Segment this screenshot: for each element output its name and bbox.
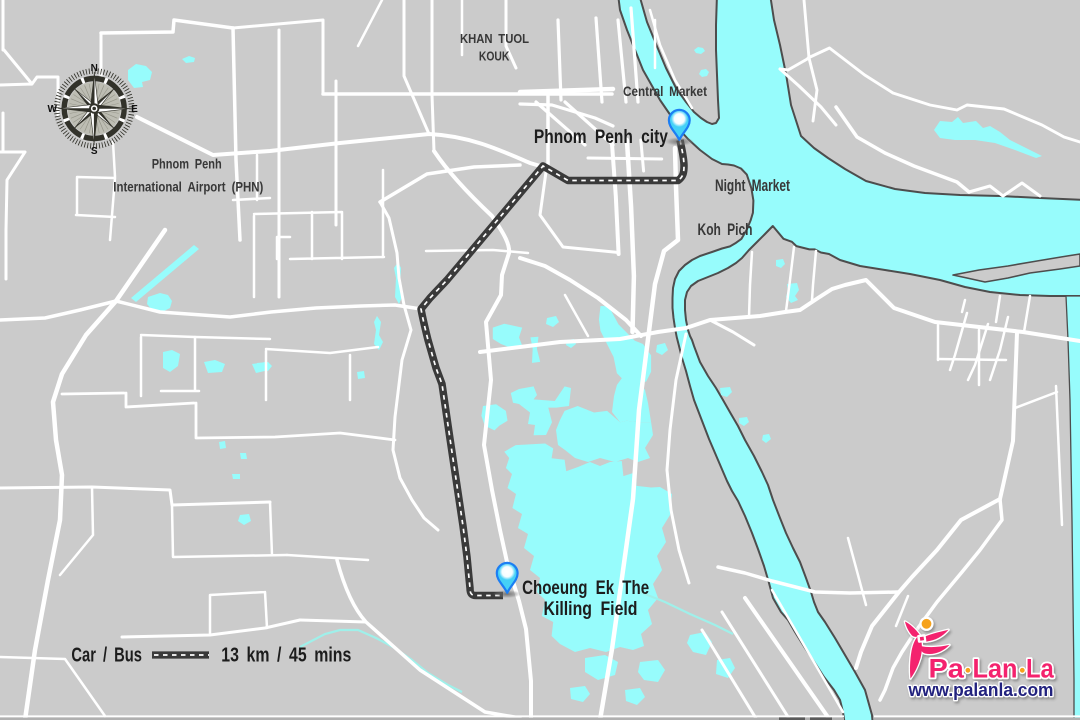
svg-text:W: W (47, 104, 57, 115)
svg-text:Night Market: Night Market (715, 176, 790, 195)
svg-text:Car / Bus: Car / Bus (71, 645, 141, 667)
svg-text:Koh Pich: Koh Pich (698, 220, 753, 239)
svg-text:Killing Field: Killing Field (544, 599, 638, 620)
svg-text:International Airport (PHN): International Airport (PHN) (113, 179, 263, 195)
svg-text:N: N (91, 63, 98, 74)
svg-text:KOUK: KOUK (479, 49, 510, 64)
svg-text:www.palanla.com: www.palanla.com (908, 679, 1054, 700)
svg-text:13 km / 45 mins: 13 km / 45 mins (221, 645, 351, 667)
svg-text:KHAN TUOL: KHAN TUOL (460, 31, 529, 46)
svg-text:Central Market: Central Market (623, 83, 707, 99)
svg-text:Phnom Penh: Phnom Penh (152, 155, 222, 171)
svg-text:Phnom Penh city: Phnom Penh city (534, 126, 668, 148)
svg-text:S: S (91, 146, 98, 157)
svg-text:Choeung Ek The: Choeung Ek The (522, 578, 649, 599)
svg-text:E: E (131, 104, 138, 115)
